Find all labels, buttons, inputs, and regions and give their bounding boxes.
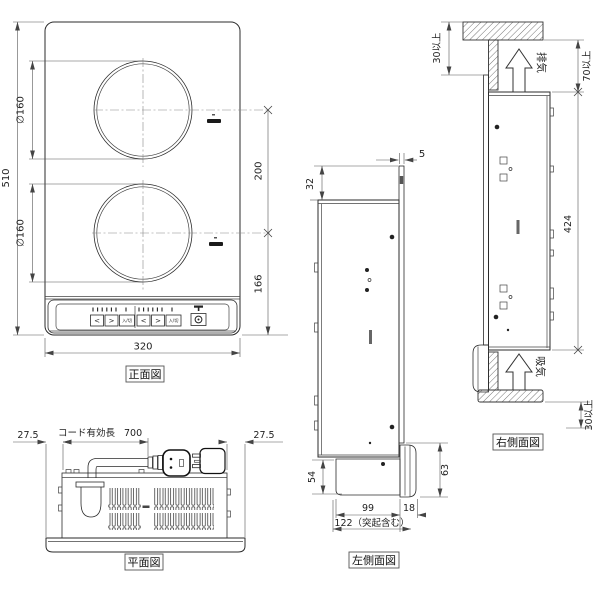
- dim-pitch-text: 200: [254, 161, 265, 180]
- intake-arrow-icon: [506, 354, 532, 390]
- drawing-svg: < > 入/切 < > 入/切: [0, 0, 600, 600]
- left-panel-lip: [400, 445, 416, 497]
- dim-height-text: 510: [1, 168, 12, 187]
- counter-top-section: [463, 22, 543, 40]
- dim-bottom-offset: 166: [242, 233, 288, 335]
- cord-clamp: [76, 482, 104, 517]
- left-panel-box: [336, 459, 400, 495]
- right-body-tabs: [550, 108, 554, 320]
- power-icon: [195, 316, 202, 323]
- technical-drawing-canvas: < > 入/切 < > 入/切: [0, 0, 600, 600]
- dim-top-clearance-text: 30以上: [432, 32, 443, 64]
- cooktop-outline: [45, 22, 240, 335]
- plan-view: 27.5 コード有効長 700 27.5 平面図: [13, 427, 283, 570]
- left-body-details: [365, 235, 394, 444]
- exhaust-arrow-icon: [506, 49, 532, 92]
- centerlines: [92, 58, 270, 292]
- power-cord: [88, 456, 163, 479]
- intake-label: 吸気: [534, 356, 547, 377]
- dim-overhang-right: 27.5: [219, 430, 283, 537]
- dim-front-height-text: 63: [440, 464, 451, 476]
- dim-body-depth-text: 99: [362, 503, 374, 514]
- cord-length-text: 700: [124, 428, 142, 439]
- dim-panel-height-text: 54: [307, 471, 318, 483]
- plug-face: [163, 450, 190, 476]
- left-body-tabs: [315, 263, 319, 430]
- dim-overhang-left-text: 27.5: [17, 430, 38, 441]
- counter-bottom-edge: [489, 352, 499, 390]
- dim-overall-width: 320: [45, 338, 240, 357]
- right-body-details: [494, 125, 520, 331]
- dim-body-height: 424: [552, 88, 584, 354]
- right-side-view: 排気 吸気 30以上 70以上 424 30以上: [432, 22, 595, 450]
- dim-flange: 32: [305, 166, 398, 200]
- plate-clip: [400, 176, 403, 184]
- power-level-indicators-right: [139, 308, 172, 312]
- front-view-label: 正面図: [129, 368, 162, 381]
- dim-flange-text: 32: [305, 178, 316, 190]
- left-burner-onoff-label: 入/切: [122, 317, 132, 324]
- right-panel-lip: [473, 345, 489, 392]
- dim-plate-thickness: 5: [376, 149, 425, 164]
- dim-width-text: 320: [133, 342, 152, 353]
- dim-overhang-right-text: 27.5: [253, 430, 274, 441]
- plug-side: [193, 449, 226, 474]
- left-burner-down-label: <: [94, 317, 100, 325]
- dim-burner-pitch: 200: [254, 106, 273, 237]
- burner-print-label-bottom: [209, 237, 223, 246]
- exhaust-label: 排気: [535, 52, 548, 73]
- left-side-view: 5 32 54 63 99 18: [305, 149, 451, 568]
- control-panel: < > 入/切 < > 入/切: [48, 300, 237, 333]
- counter-top-edge: [489, 40, 499, 90]
- cord-label-text: コード有効長: [58, 427, 116, 439]
- dim-exhaust-clearance-text: 70以上: [582, 50, 593, 82]
- left-body: [318, 200, 399, 457]
- top-plate-edge-right: [484, 75, 489, 345]
- dim-body-height-text: 424: [563, 215, 574, 233]
- dim-overall-height: 510: [1, 22, 44, 335]
- burner-print-label-top: [207, 114, 221, 123]
- dim-total-depth-text: 122（突起含む）: [334, 517, 409, 529]
- dim-burner-bottom-text: ∅160: [16, 219, 27, 247]
- left-view-label: 左側面図: [352, 554, 396, 567]
- dim-panel-height: 54: [307, 460, 342, 494]
- vent-grilles: [108, 488, 214, 530]
- right-burner-up-label: >: [155, 317, 161, 325]
- dim-burner-bottom: ∅160: [16, 184, 144, 282]
- mounting-bumps: [66, 470, 219, 474]
- dim-burner-top: ∅160: [16, 61, 144, 159]
- dim-burner-top-text: ∅160: [16, 96, 27, 124]
- top-plate-edge-left: [399, 166, 404, 443]
- right-burner-down-label: <: [141, 317, 147, 325]
- power-level-indicators-left: [93, 308, 126, 312]
- left-burner-up-label: >: [109, 317, 115, 325]
- plan-view-label: 平面図: [128, 556, 161, 569]
- right-burner-onoff-label: 入/切: [169, 317, 179, 324]
- dim-cord-length: コード有効長 700: [58, 427, 148, 456]
- dim-offset-text: 166: [254, 274, 265, 293]
- trim-plate: [46, 538, 245, 552]
- right-view-label: 右側面図: [496, 435, 540, 449]
- dim-exhaust-clearance: 70以上: [544, 40, 593, 92]
- dim-bottom-clearance-text: 30以上: [584, 399, 595, 431]
- dim-plate-text: 5: [419, 149, 425, 160]
- front-view: < > 入/切 < > 入/切: [1, 22, 288, 382]
- timer-mark-icon: [194, 306, 203, 312]
- dim-bottom-clearance: 30以上: [545, 399, 595, 431]
- dim-lip-text: 18: [403, 503, 415, 514]
- dim-front-height: 63: [406, 443, 451, 497]
